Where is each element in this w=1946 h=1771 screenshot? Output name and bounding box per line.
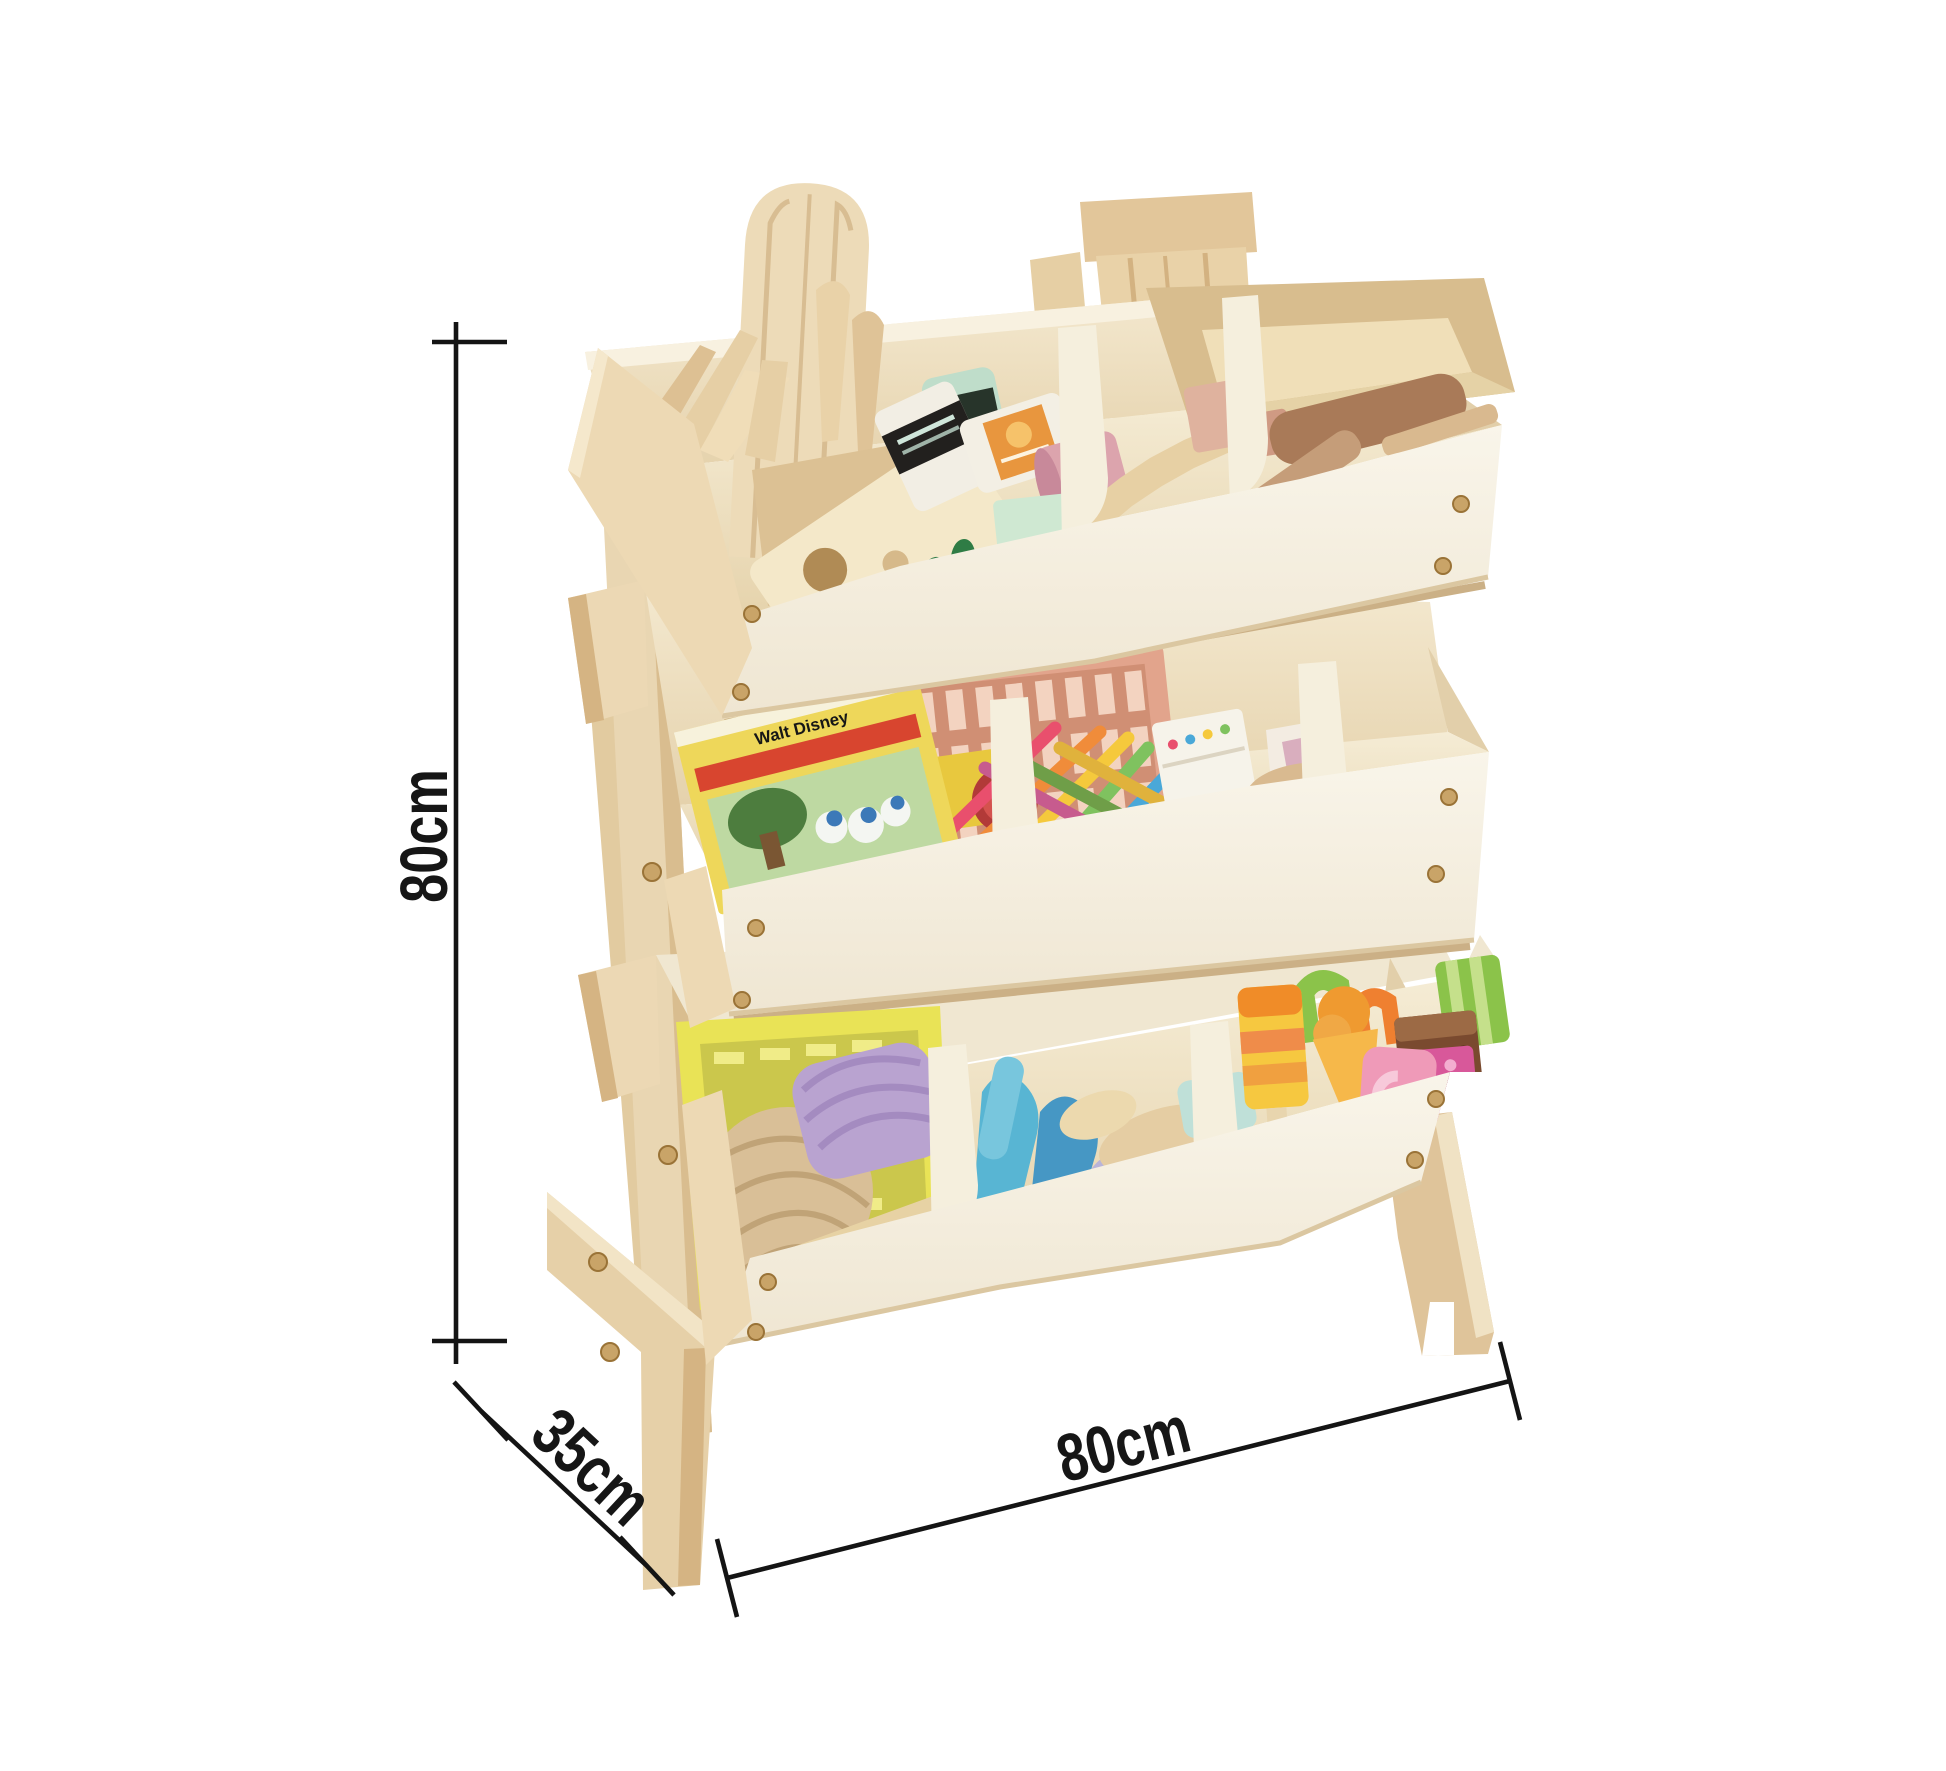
svg-text:80cm: 80cm <box>387 769 462 903</box>
